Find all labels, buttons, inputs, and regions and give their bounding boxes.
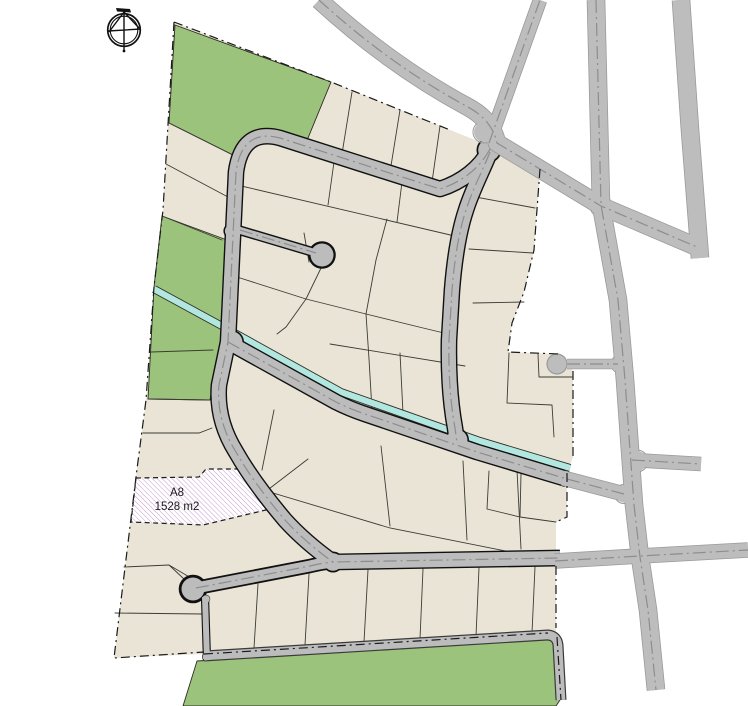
svg-text:A8: A8 [170, 487, 184, 499]
svg-text:1528 m2: 1528 m2 [155, 501, 200, 513]
